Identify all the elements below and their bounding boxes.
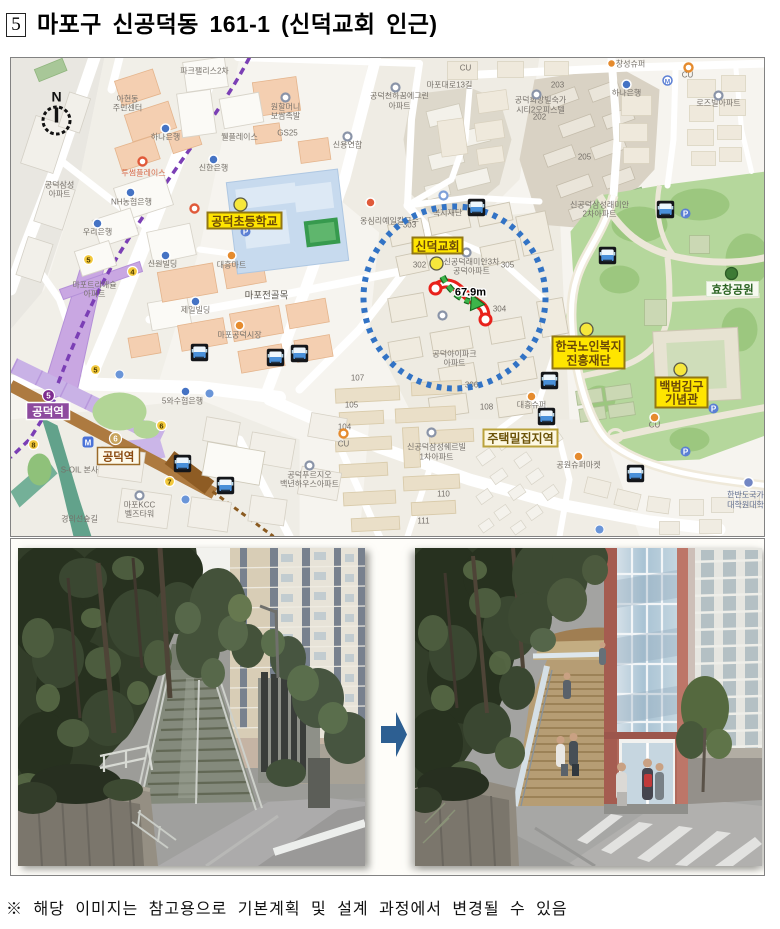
svg-text:공덕아파트: 공덕아파트: [453, 266, 490, 276]
svg-text:아파트: 아파트: [388, 101, 410, 111]
svg-text:마포KCC: 마포KCC: [124, 501, 156, 510]
svg-text:M: M: [665, 79, 670, 86]
svg-text:대학원대학: 대학원대학: [727, 500, 764, 510]
svg-text:마포대로13길: 마포대로13길: [427, 81, 473, 90]
svg-text:7: 7: [167, 478, 171, 487]
svg-text:벨즈타워: 벨즈타워: [125, 509, 154, 519]
svg-text:아현동: 아현동: [116, 94, 138, 104]
svg-text:백년하우스아파트: 백년하우스아파트: [280, 479, 339, 489]
svg-text:111: 111: [417, 517, 430, 526]
svg-text:공덕푸르지오: 공덕푸르지오: [287, 470, 331, 480]
svg-text:2차아파트: 2차아파트: [583, 209, 617, 219]
svg-text:305: 305: [501, 261, 515, 270]
svg-text:6: 6: [159, 422, 163, 431]
svg-text:대흥마트: 대흥마트: [217, 260, 246, 270]
svg-text:203: 203: [551, 81, 565, 90]
svg-text:5: 5: [46, 392, 51, 401]
svg-text:P: P: [683, 448, 689, 457]
svg-text:공덕삼성: 공덕삼성: [45, 180, 74, 190]
svg-text:신공덕삼성쉐르빌: 신공덕삼성쉐르빌: [407, 442, 466, 452]
svg-text:P: P: [711, 405, 717, 414]
svg-text:공덕역: 공덕역: [103, 450, 135, 464]
svg-text:주민센터: 주민센터: [113, 103, 142, 113]
svg-text:205: 205: [578, 153, 592, 162]
svg-text:복지재단: 복지재단: [433, 208, 463, 218]
svg-text:신공덕삼성래미안: 신공덕삼성래미안: [570, 200, 630, 210]
svg-text:진흥재단: 진흥재단: [566, 353, 610, 368]
svg-text:GS25: GS25: [277, 129, 298, 138]
svg-text:6: 6: [113, 435, 118, 444]
svg-text:아파트: 아파트: [443, 358, 465, 368]
svg-text:투썸플레이스: 투썸플레이스: [121, 168, 165, 178]
svg-text:105: 105: [345, 401, 359, 410]
svg-text:302: 302: [413, 261, 427, 270]
svg-text:공덕아이파크: 공덕아이파크: [432, 349, 476, 359]
svg-text:경의선숲길: 경의선숲길: [61, 514, 98, 524]
svg-text:한반도국가: 한반도국가: [727, 491, 764, 500]
svg-text:P: P: [683, 210, 689, 219]
svg-text:파크팰리스2차: 파크팰리스2차: [180, 66, 229, 76]
svg-text:아파트: 아파트: [48, 189, 70, 199]
svg-text:마포공덕시장: 마포공덕시장: [217, 330, 262, 340]
svg-text:기념관: 기념관: [665, 392, 698, 407]
svg-text:웰플레이스: 웰플레이스: [221, 132, 258, 142]
svg-text:옹심리예일칼국수: 옹심리예일칼국수: [360, 216, 419, 226]
svg-text:효창공원: 효창공원: [711, 283, 753, 297]
svg-text:신원빌딩: 신원빌딩: [148, 259, 177, 269]
svg-text:5와수협은행: 5와수협은행: [162, 396, 203, 406]
svg-text:신덕교회: 신덕교회: [415, 239, 459, 254]
svg-text:공덕초등학교: 공덕초등학교: [211, 214, 277, 229]
svg-text:한국노인복지: 한국노인복지: [555, 339, 621, 354]
svg-text:107: 107: [351, 374, 365, 383]
svg-text:원할머니: 원할머니: [271, 102, 300, 112]
svg-text:5: 5: [93, 366, 97, 375]
svg-text:8: 8: [31, 441, 35, 450]
svg-text:마포트리애슐: 마포트리애슐: [72, 280, 116, 290]
svg-text:108: 108: [480, 403, 494, 412]
svg-text:창성슈퍼: 창성슈퍼: [616, 60, 645, 69]
svg-text:공덕천하꿈에그린: 공덕천하꿈에그린: [370, 91, 429, 101]
svg-text:1차아파트: 1차아파트: [420, 452, 454, 462]
svg-text:CU: CU: [338, 440, 350, 449]
svg-text:110: 110: [437, 490, 450, 499]
svg-text:NH농협은행: NH농협은행: [111, 197, 152, 207]
svg-text:보쌈족발: 보쌈족발: [271, 111, 301, 121]
svg-text:304: 304: [493, 305, 507, 314]
svg-text:67.9m: 67.9m: [455, 287, 486, 299]
svg-text:공덕역: 공덕역: [32, 405, 64, 419]
svg-text:주택밀집지역: 주택밀집지역: [487, 431, 553, 446]
svg-text:N: N: [51, 89, 61, 105]
svg-text:마포전골목: 마포전골목: [245, 291, 289, 302]
svg-text:아파트: 아파트: [83, 289, 105, 299]
svg-text:백범김구: 백범김구: [659, 379, 703, 394]
svg-text:S-OIL 본사: S-OIL 본사: [61, 466, 99, 475]
svg-text:5: 5: [86, 256, 90, 265]
svg-text:M: M: [85, 439, 92, 448]
svg-text:신공덕래미안3차: 신공덕래미안3차: [444, 257, 501, 267]
svg-text:CU: CU: [460, 64, 472, 73]
svg-text:시티2오피스텔: 시티2오피스텔: [516, 106, 565, 115]
svg-text:신용연합: 신용연합: [333, 141, 363, 150]
